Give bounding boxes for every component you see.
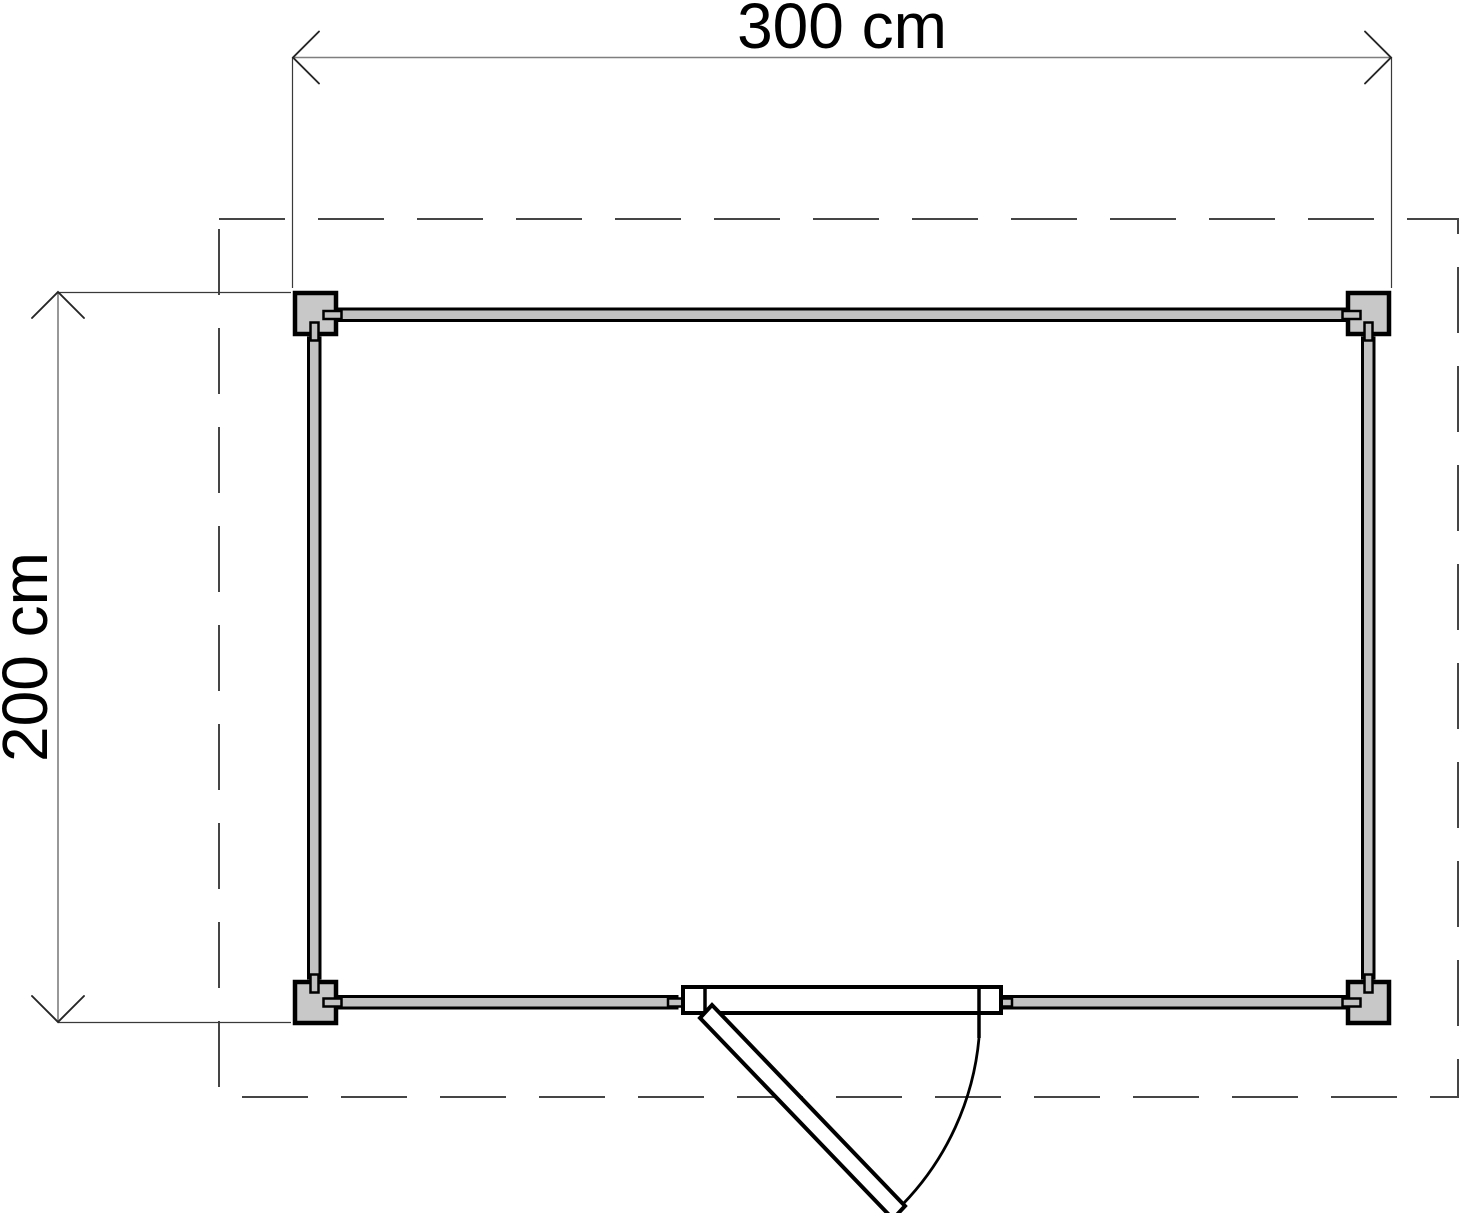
corner-posts: [295, 293, 1389, 1023]
tenon-left-wall-top: [311, 323, 319, 341]
wall-bottom-right: [1004, 997, 1345, 1009]
dimension-depth: 200 cm: [0, 292, 291, 1023]
tenon-left-wall-bottom: [311, 975, 319, 993]
tenon-right-wall-bottom: [1365, 975, 1373, 993]
tenon-right-wall-top: [1365, 323, 1373, 341]
wall-bottom-left: [339, 997, 677, 1009]
floor-plan-drawing: 300 cm 200 cm: [0, 0, 1465, 1213]
wall-left: [309, 338, 321, 978]
door-swing-arc: [903, 1038, 979, 1204]
door-frame: [683, 987, 1001, 1013]
wall-tenons: [311, 311, 1373, 1007]
tenon-bottom-right-wall-right: [1343, 999, 1361, 1007]
dimension-width: 300 cm: [293, 0, 1392, 288]
door-leaf: [700, 1005, 905, 1213]
tenon-top-wall-left: [324, 311, 342, 319]
door: [683, 986, 1001, 1213]
tenon-bottom-left-wall-left: [324, 999, 342, 1007]
walls: [309, 309, 1375, 1008]
dim-width-label: 300 cm: [737, 0, 947, 62]
dim-depth-label: 200 cm: [0, 552, 61, 762]
tenon-top-wall-right: [1343, 311, 1361, 319]
wall-right: [1363, 338, 1375, 978]
wall-top: [339, 309, 1345, 321]
roof-overhang-outline: [219, 219, 1458, 1097]
floor-plan-canvas: 300 cm 200 cm: [0, 0, 1465, 1213]
